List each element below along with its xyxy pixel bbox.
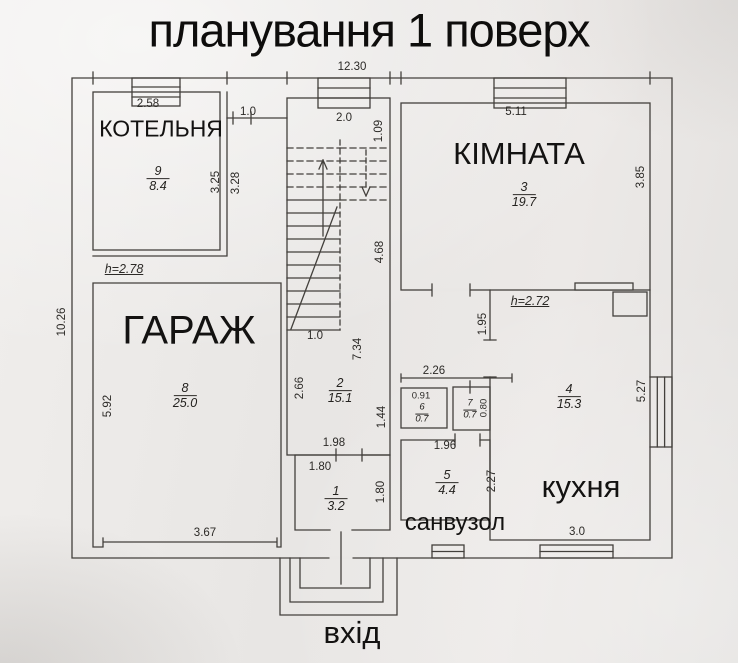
stairs-break-line <box>291 207 337 329</box>
dim-closets-total-width: 2.26 <box>423 365 445 377</box>
room-number: 3 <box>513 180 536 195</box>
room-stat-kitchen: 4 15.3 <box>557 382 581 412</box>
room-area: 19.7 <box>512 196 536 210</box>
dim-total-height: 10.26 <box>56 308 68 337</box>
room-area: 8.4 <box>147 180 170 194</box>
room-stat-closet7: 7 0.7 <box>463 399 476 422</box>
room-number: 8 <box>174 381 197 396</box>
dim-tambour-width: 1.80 <box>309 461 331 473</box>
dim-kitchen-door-offset: 1.95 <box>477 313 489 335</box>
height-kitchen: h=2.72 <box>511 294 550 308</box>
dim-stairs-bottom-width: 1.0 <box>307 330 323 342</box>
dim-kimnata-depth: 3.85 <box>635 166 647 188</box>
dim-sanvuzol-width: 1.96 <box>434 440 456 452</box>
dim-closet6-width: 0.91 <box>412 391 431 402</box>
entrance-label: вхід <box>324 615 381 651</box>
room-number: 1 <box>325 484 348 499</box>
room-number: 5 <box>436 468 459 483</box>
dim-tambour-depth: 1.80 <box>375 481 387 503</box>
dim-kotelnya-width: 2.58 <box>137 98 159 110</box>
room-stat-sanvuzol: 5 4.4 <box>436 468 459 498</box>
dim-hall-length: 7.34 <box>352 338 364 360</box>
room-stat-hall: 2 15.1 <box>328 376 352 406</box>
room-label-kitchen: кухня <box>542 469 621 505</box>
floor-plan-page: планування 1 поверх КОТЕЛЬНЯ КІМНАТА ГАР… <box>0 0 738 663</box>
dim-closet7-depth: 0.80 <box>479 399 490 418</box>
room-area: 3.2 <box>325 500 348 514</box>
room-area: 25.0 <box>173 397 197 411</box>
room-number: 9 <box>147 164 170 179</box>
dim-kitchen-depth: 5.27 <box>636 380 648 402</box>
room-label-garage: ГАРАЖ <box>122 309 255 354</box>
room-label-sanvuzol: санвузол <box>405 509 505 537</box>
dim-kotelnya-depth-outer: 3.28 <box>230 172 242 194</box>
dim-kimnata-width: 5.11 <box>505 106 527 118</box>
room-area: 0.7 <box>463 411 476 422</box>
height-kotelnya: h=2.78 <box>105 262 144 276</box>
porch-steps <box>280 558 397 615</box>
room-stat-kotelnya: 9 8.4 <box>147 164 170 194</box>
dim-stairs-width: 2.0 <box>336 112 352 124</box>
room-stat-tambour: 1 3.2 <box>325 484 348 514</box>
dim-hall-bottom-width: 1.98 <box>323 437 345 449</box>
dim-kitchen-window-width: 3.0 <box>569 526 585 538</box>
room-stat-kimnata: 3 19.7 <box>512 180 536 210</box>
room-label-kotelnya: КОТЕЛЬНЯ <box>99 116 223 143</box>
room-area: 15.1 <box>328 392 352 406</box>
dim-niche-width: 1.0 <box>240 106 256 118</box>
dim-sanvuzol-depth: 2.27 <box>486 470 498 492</box>
page-title: планування 1 поверх <box>149 3 590 58</box>
room-label-kimnata: КІМНАТА <box>453 136 585 172</box>
room-stat-closet6: 6 0.7 <box>415 403 428 426</box>
dim-stairs-top-offset: 1.09 <box>373 120 385 142</box>
dim-hall-width: 2.66 <box>294 377 306 399</box>
room-area: 0.7 <box>415 415 428 426</box>
room-area: 4.4 <box>436 484 459 498</box>
dim-stairs-flight-length: 4.68 <box>374 241 386 263</box>
room-stat-garage: 8 25.0 <box>173 381 197 411</box>
dim-hall-right-segment: 1.44 <box>376 406 388 428</box>
dim-total-width: 12.30 <box>338 61 367 73</box>
dim-kotelnya-depth-inner: 3.25 <box>210 171 222 193</box>
dim-garage-depth: 5.92 <box>102 395 114 417</box>
room-number: 2 <box>329 376 352 391</box>
stairs-up-arrow <box>319 160 327 236</box>
room-number: 4 <box>558 382 581 397</box>
dim-garage-door-width: 3.67 <box>194 527 216 539</box>
floor-plan-drawing <box>0 0 738 663</box>
room-area: 15.3 <box>557 398 581 412</box>
